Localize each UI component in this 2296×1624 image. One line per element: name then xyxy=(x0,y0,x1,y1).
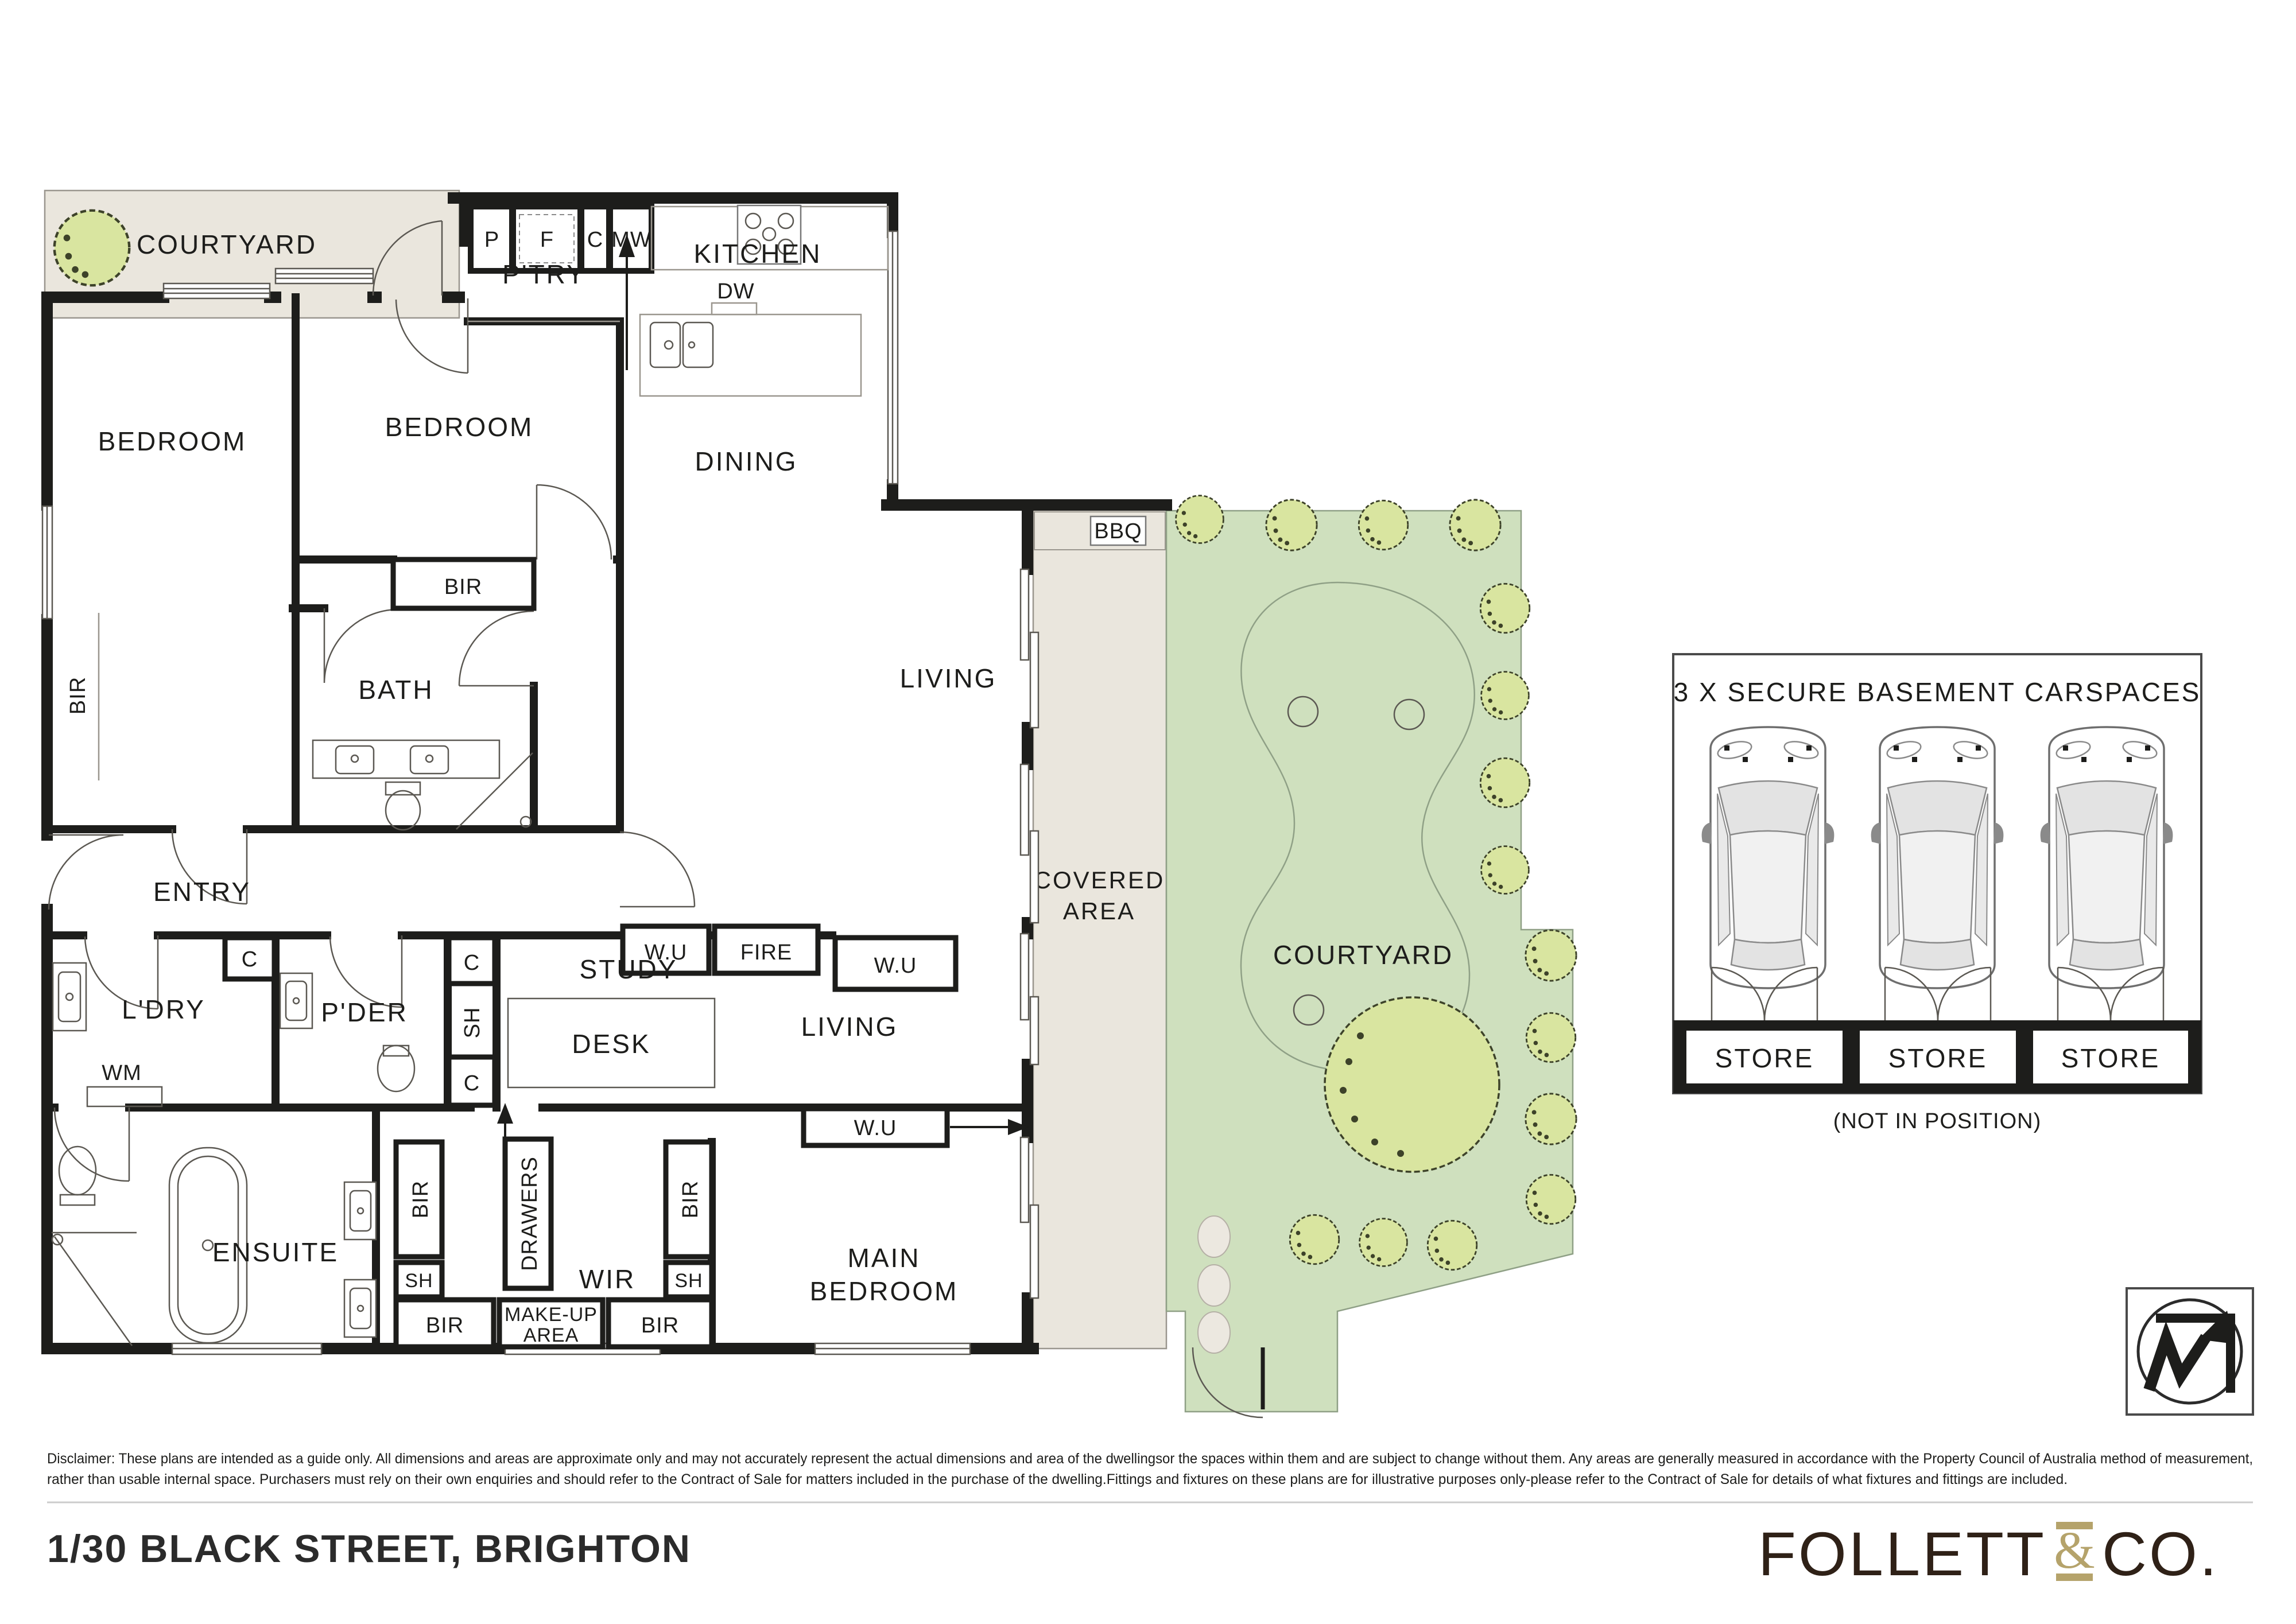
fixture-label-bir-bottom-left: BIR xyxy=(426,1314,464,1338)
fixture-label-sh-wir-left: SH xyxy=(405,1270,433,1292)
fixture-label-desk: DESK xyxy=(572,1029,650,1059)
bath-fixtures xyxy=(99,560,534,830)
fixture-label-sh-stack: SH xyxy=(460,1007,484,1039)
garden-courtyard: COURTYARD xyxy=(1166,496,1576,1417)
footer: Disclaimer: These plans are intended as … xyxy=(47,1451,2253,1588)
room-label-dining: DINING xyxy=(695,446,798,476)
room-label-bedroom-2: BEDROOM xyxy=(385,412,534,442)
fixture-label-wu-3: W.U xyxy=(854,1116,897,1140)
kitchen-fixtures: P F C MW xyxy=(468,205,888,396)
toilet-icon xyxy=(386,782,420,830)
exterior-walls xyxy=(47,198,1166,1349)
room-label-living-2: LIVING xyxy=(801,1012,898,1042)
fixture-label-makeup-1: MAKE-UP xyxy=(505,1304,598,1326)
room-label-main-bedroom-2: BEDROOM xyxy=(810,1276,959,1306)
store-label-1: STORE xyxy=(1715,1043,1814,1073)
fixture-label-c: C xyxy=(587,228,603,252)
north-arrow-icon xyxy=(2127,1288,2253,1415)
room-label-bath: BATH xyxy=(358,675,433,705)
room-label-covered-2: AREA xyxy=(1063,898,1135,924)
room-label-wir: WIR xyxy=(579,1264,635,1294)
room-label-courtyard-top: COURTYARD xyxy=(137,230,317,259)
room-label-covered-1: COVERED xyxy=(1034,867,1165,893)
room-label-ldry: L'DRY xyxy=(122,994,205,1024)
fixture-label-f: F xyxy=(540,228,554,252)
fixture-label-bir-bottom-right: BIR xyxy=(641,1314,679,1338)
address-title: 1/30 BLACK STREET, BRIGHTON xyxy=(47,1527,691,1571)
floorplan-page: COURTYARD BBQ COVERED AREA xyxy=(0,0,2296,1624)
room-label-living-1: LIVING xyxy=(900,663,997,693)
room-label-pder: P'DER xyxy=(321,997,408,1027)
disclaimer-line-1: Disclaimer: These plans are intended as … xyxy=(47,1451,2253,1467)
island-bench xyxy=(640,303,861,396)
brand-bar-bottom xyxy=(2056,1574,2093,1581)
room-label-ptry: P'TRY xyxy=(502,259,586,289)
room-label-ensuite: ENSUITE xyxy=(212,1237,339,1267)
carspaces-note: (NOT IN POSITION) xyxy=(1833,1109,2042,1133)
room-label-courtyard-main: COURTYARD xyxy=(1273,940,1453,970)
ensuite-wir-fixtures: BIR SH DRAWERS BIR SH BIR MAKE-UP AREA B… xyxy=(52,1139,712,1347)
carspaces-panel: 3 X SECURE BASEMENT CARSPACES STORE STOR… xyxy=(1673,654,2201,1133)
fixture-label-p: P xyxy=(484,228,499,252)
fixture-label-bir-bedroom1: BIR xyxy=(66,677,90,714)
big-tree-icon xyxy=(1325,997,1499,1172)
brand-name-left: FOLLETT xyxy=(1758,1519,2046,1588)
store-label-3: STORE xyxy=(2061,1043,2161,1073)
fixture-label-bir-bedroom2: BIR xyxy=(444,575,482,599)
brand-ampersand: & xyxy=(2054,1521,2095,1579)
covered-area: BBQ COVERED AREA xyxy=(1033,510,1166,1349)
room-label-main-bedroom-1: MAIN xyxy=(848,1243,921,1273)
fixture-label-wu-2: W.U xyxy=(874,954,917,978)
brand-name-right: CO. xyxy=(2102,1519,2219,1588)
living-fixtures: W.U FIRE W.U W.U xyxy=(497,926,1029,1196)
fixture-label-dw: DW xyxy=(717,279,754,304)
fixture-label-sh-wir-right: SH xyxy=(674,1270,703,1292)
store-label-2: STORE xyxy=(1888,1043,1988,1073)
room-label-entry: ENTRY xyxy=(153,877,251,907)
fixture-label-wm: WM xyxy=(102,1061,142,1085)
room-label-study: STUDY xyxy=(580,954,678,984)
room-label-bedroom-1: BEDROOM xyxy=(98,426,247,456)
room-label-kitchen: KITCHEN xyxy=(694,239,822,269)
carspaces-title: 3 X SECURE BASEMENT CARSPACES xyxy=(1674,677,2201,707)
fixture-label-bir-wir-left: BIR xyxy=(409,1180,433,1218)
floorplan-canvas: COURTYARD BBQ COVERED AREA xyxy=(0,0,2296,1624)
fixture-label-makeup-2: AREA xyxy=(523,1324,579,1346)
brand-logo: FOLLETT & CO. xyxy=(1758,1519,2219,1588)
fixture-label-c-stack-bottom: C xyxy=(464,1071,480,1095)
fixture-label-bbq: BBQ xyxy=(1094,519,1142,543)
fixture-label-c-stack-top: C xyxy=(464,951,480,975)
fixture-label-drawers: DRAWERS xyxy=(518,1156,542,1271)
fixture-label-fire: FIRE xyxy=(740,941,793,965)
disclaimer-line-2: rather than usable internal space. Purch… xyxy=(47,1471,2068,1487)
fixture-label-bir-wir-right: BIR xyxy=(678,1180,703,1218)
fixture-label-c-ldry: C xyxy=(242,947,258,972)
